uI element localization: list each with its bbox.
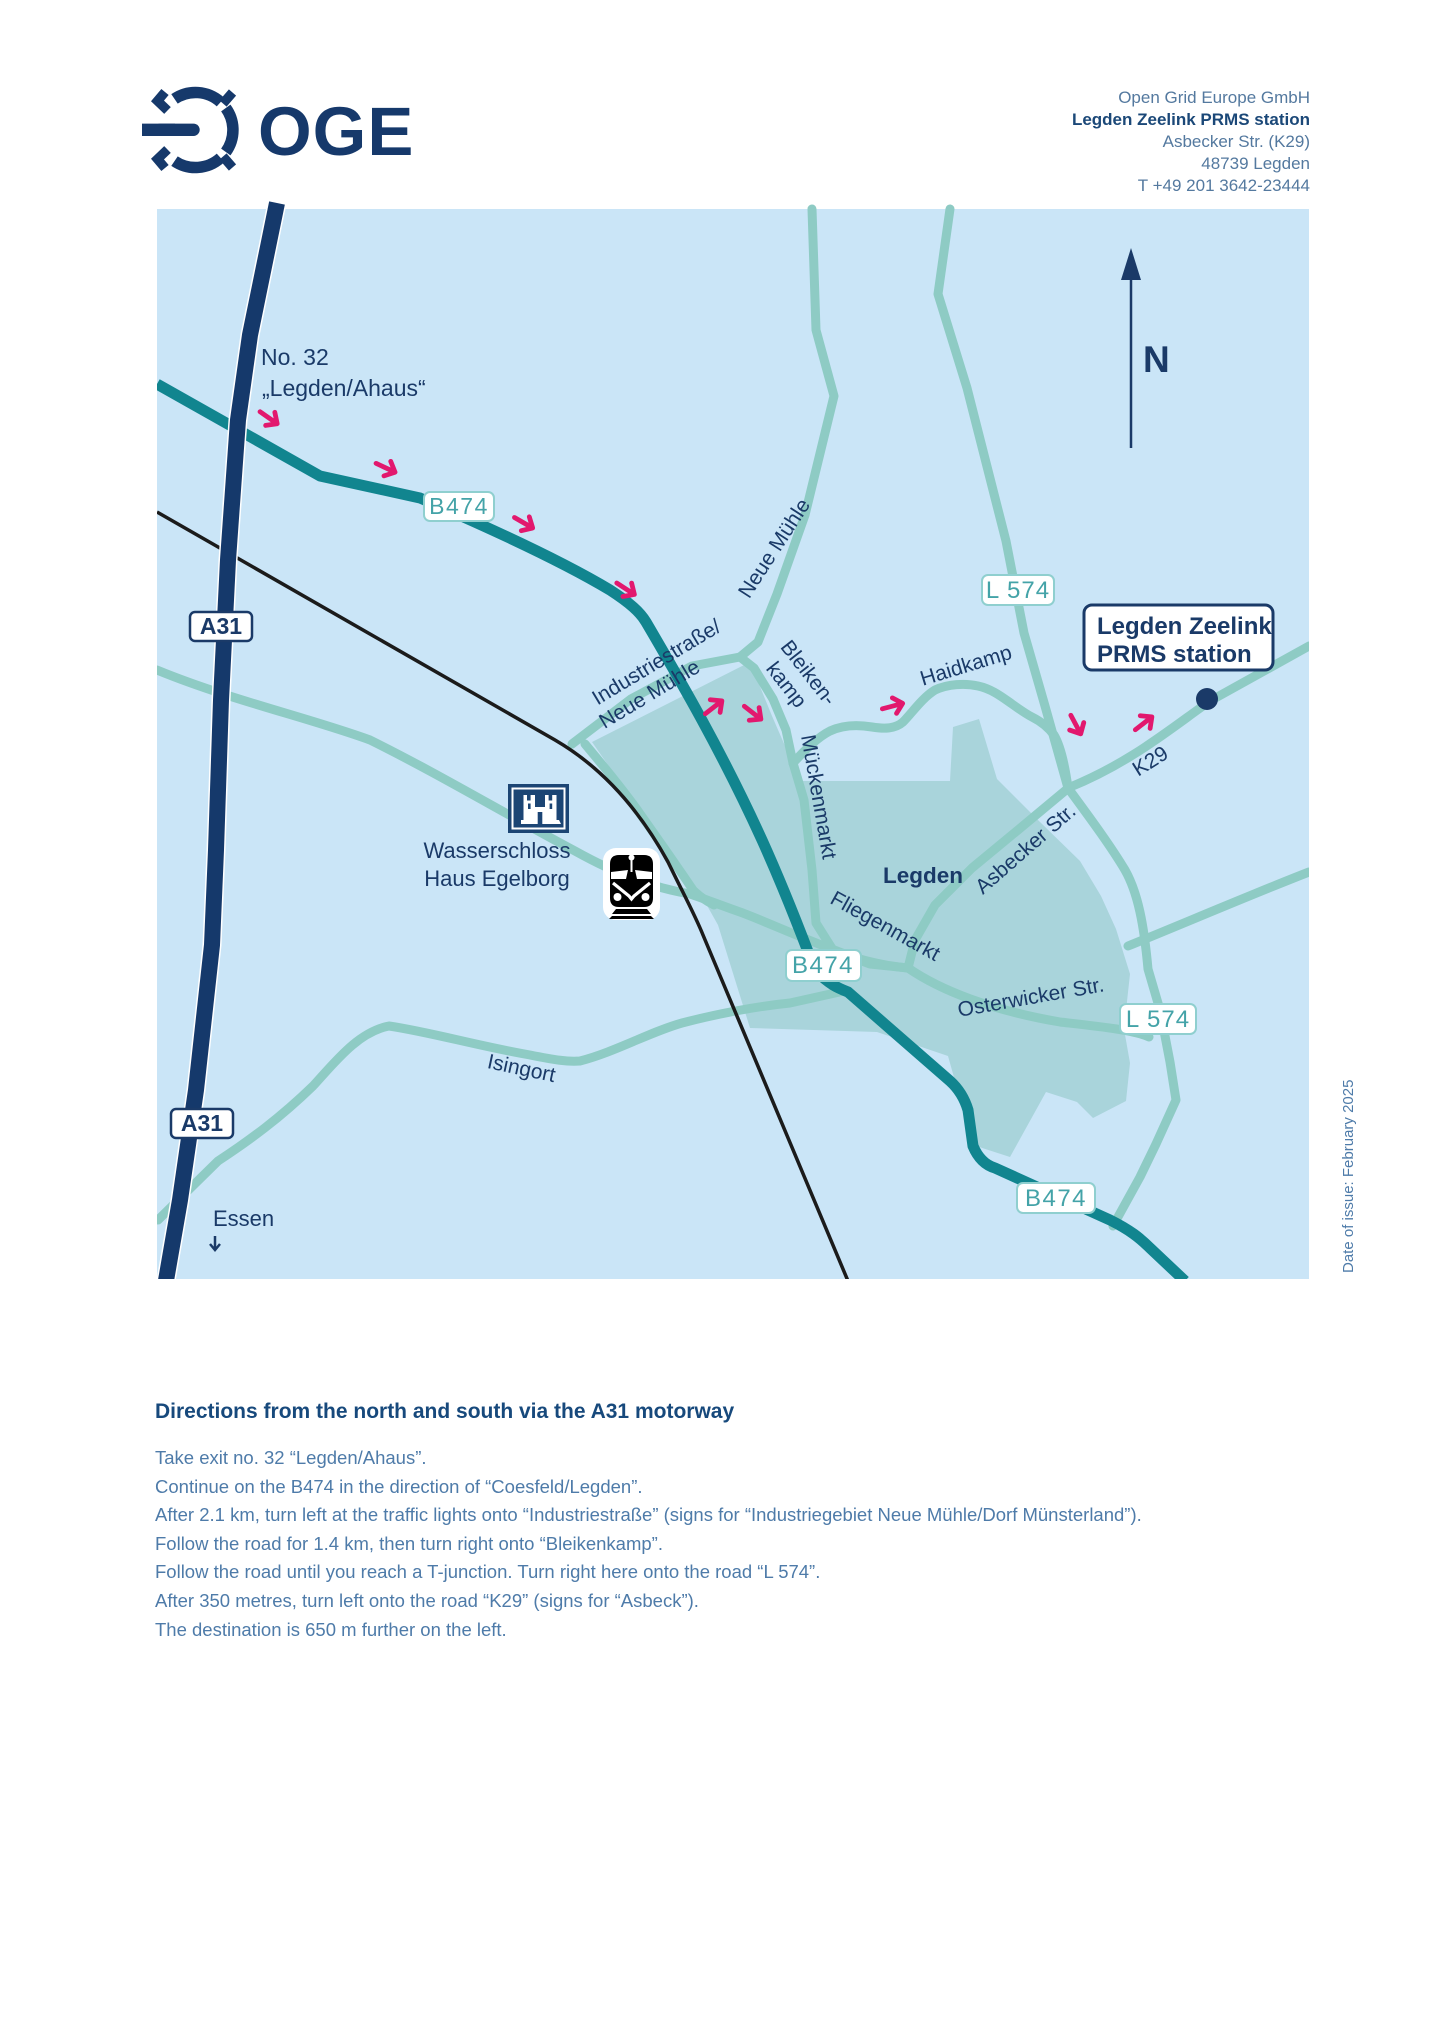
- svg-text:B474: B474: [792, 952, 854, 979]
- svg-text:A31: A31: [200, 613, 242, 639]
- svg-text:L 574: L 574: [986, 577, 1050, 604]
- svg-text:Wasserschloss: Wasserschloss: [423, 838, 570, 863]
- svg-text:L 574: L 574: [1126, 1006, 1190, 1033]
- svg-text:OGE: OGE: [258, 93, 414, 170]
- svg-text:B474: B474: [1025, 1185, 1087, 1212]
- svg-text:„Legden/Ahaus“: „Legden/Ahaus“: [262, 375, 426, 401]
- svg-text:B474: B474: [429, 493, 489, 519]
- svg-text:N: N: [1143, 339, 1170, 380]
- svg-text:Haus Egelborg: Haus Egelborg: [424, 866, 570, 891]
- svg-text:Legden Zeelink: Legden Zeelink: [1097, 613, 1272, 640]
- svg-text:Essen: Essen: [213, 1206, 274, 1231]
- svg-text:Legden: Legden: [883, 863, 963, 888]
- svg-text:PRMS station: PRMS station: [1097, 641, 1252, 668]
- svg-text:A31: A31: [181, 1110, 223, 1136]
- svg-text:No. 32: No. 32: [261, 344, 329, 370]
